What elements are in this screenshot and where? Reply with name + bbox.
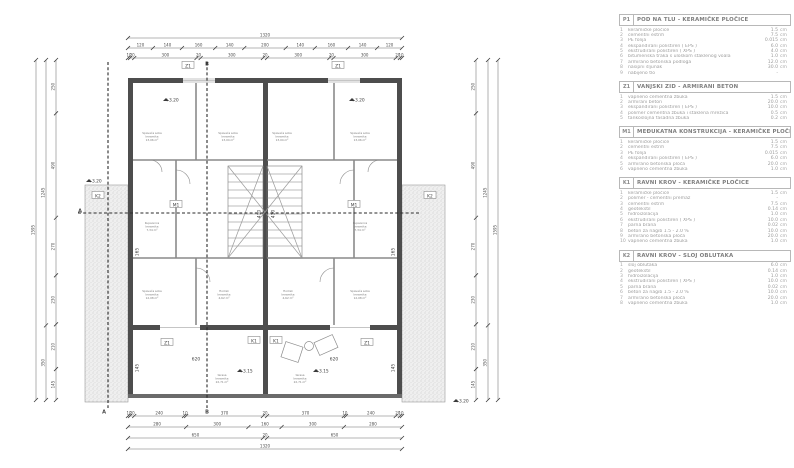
label-text: Z1: [335, 63, 341, 69]
legend-item-unit: cm: [778, 65, 791, 70]
room-label-line: 13,04 m²: [222, 138, 235, 142]
level-marker: +3.20: [86, 178, 102, 184]
room-label-line: 12,08 m²: [354, 296, 367, 300]
label-text: K1: [251, 338, 257, 344]
legend-item-unit: cm: [778, 167, 791, 172]
room-label-line: 22,71 m²: [216, 380, 229, 384]
tag-z1: Z1: [361, 338, 373, 346]
legend-item-num: 8: [620, 301, 628, 306]
legend-section-code: M1: [620, 127, 634, 137]
legend-item-name: vapneno cementna žbuka: [628, 301, 761, 306]
label-text: 410: [270, 210, 276, 219]
label-text: M1: [351, 202, 358, 208]
legend-section-title: RAVNI KROV - SLOJ OBLUTAKA: [634, 251, 790, 261]
annotation-label: 145: [134, 364, 140, 373]
room-label: terasakeramika22,71 m²: [216, 373, 229, 384]
window-icon: [328, 78, 360, 83]
room-label-line: 7,34 m²: [355, 228, 366, 232]
legend-item-num: 10: [620, 239, 628, 244]
window-icon: [183, 78, 215, 83]
label-text: 620: [330, 356, 339, 362]
dim-label: 490: [471, 161, 476, 169]
legend-item: 8vapneno cementna žbuka1.0cm: [620, 301, 791, 306]
level-marker: +3.20: [349, 97, 365, 103]
tag-k2: K2: [92, 191, 104, 199]
label-text: 145: [390, 364, 396, 373]
tag-z1: Z1: [161, 338, 173, 346]
annotation-label: 410: [256, 210, 262, 219]
annotation-label: 165: [134, 248, 140, 257]
legend-item-val: -: [761, 71, 778, 76]
dim-label: 280: [369, 422, 377, 427]
label-text: 620: [192, 356, 201, 362]
dim-label: 160: [261, 422, 269, 427]
label-text: 145: [134, 364, 140, 373]
dim-label: 140: [296, 43, 304, 48]
annotation-label: A: [78, 208, 82, 214]
room-label: Kupaonicakeramika7,34 m²: [145, 221, 160, 232]
legend-section-z1: Z1VANJSKI ZID - ARMIRANI BETON1vapneno c…: [619, 81, 791, 121]
dim-label: 1595: [493, 224, 498, 235]
dim-label: 300: [213, 422, 221, 427]
annotation-label: 145: [390, 364, 396, 373]
legend-item-name: vapneno cementna žbuka: [628, 239, 761, 244]
dim-label: 210: [471, 342, 476, 350]
dimension-chain: 120140160140200140160140120: [126, 43, 404, 50]
dim-label: 250: [51, 82, 56, 90]
dimension-chain: 280300160300280: [126, 422, 404, 429]
building-walls: [128, 78, 402, 398]
legend-section-title: POD NA TLU - KERAMIČKE PLOČICE: [634, 15, 790, 25]
dimension-chain: 1320: [126, 444, 404, 451]
dim-label: 240: [367, 411, 375, 416]
legend-section-title: RAVNI KROV - KERAMIČKE PLOČICE: [634, 178, 790, 188]
room-label: Spavaća sobakeramika12,08 m²: [142, 289, 162, 300]
tag-k2: K2: [424, 191, 436, 199]
dim-label: 350: [483, 358, 488, 366]
annotation-label: B: [205, 409, 209, 415]
dim-label: 200: [261, 43, 269, 48]
legend-item-name: vapneno cementna žbuka: [628, 167, 761, 172]
legend-item-list: 1keramičke pločice1.5cm2cementni estrih7…: [620, 140, 791, 172]
label-text: 410: [256, 210, 262, 219]
dim-label: 210: [51, 342, 56, 350]
label-text: +3.15: [315, 368, 329, 374]
tag-z1: Z1: [182, 61, 194, 69]
dimension-chain: 250490270230210145: [471, 58, 478, 402]
dim-label: 490: [51, 161, 56, 169]
dim-label: 160: [328, 43, 336, 48]
wall-terrace-bottom: [128, 394, 402, 398]
annotation-label: A: [102, 409, 106, 415]
dim-label: 20: [196, 53, 202, 58]
legend-item: 6vapneno cementna žbuka1.0cm: [620, 167, 791, 172]
legend-section-header: Z1VANJSKI ZID - ARMIRANI BETON: [619, 81, 791, 93]
legend-item-num: 6: [620, 167, 628, 172]
dimension-chain: 10203002030020300203002010: [126, 53, 404, 60]
dim-label: 145: [51, 380, 56, 388]
dimension-chain: 250490270230210145: [51, 58, 58, 402]
tag-m1: M1: [170, 200, 182, 208]
legend-item: 10vapneno cementna žbuka1.0cm: [620, 239, 791, 244]
dimension-chain: 1595: [493, 58, 500, 402]
legend-item-unit: cm: [778, 239, 791, 244]
dim-label: 300: [162, 53, 170, 58]
dimension-chain: 65020650: [126, 433, 404, 440]
dimension-chain: 10202401037020370102402010: [126, 411, 404, 418]
legend-section-code: P1: [620, 15, 634, 25]
room-label-line: 22,71 m²: [294, 380, 307, 384]
dim-label: 140: [164, 43, 172, 48]
dim-label: 10: [398, 411, 404, 416]
room-label: terasakeramika22,71 m²: [294, 373, 307, 384]
dim-label: 300: [309, 422, 317, 427]
dim-label: 1320: [260, 444, 271, 449]
dim-label: 650: [192, 433, 200, 438]
legend-item-name: tankoslojna fasadna žbuka: [628, 116, 761, 121]
dim-label: 270: [51, 242, 56, 250]
label-text: +3.20: [88, 178, 102, 184]
room-label-line: 13,04 m²: [276, 138, 289, 142]
dimension-chain: 1245350: [483, 58, 490, 402]
legend-item-list: 1sloj oblutaka6.0cm2geotekstil0.14cm3hid…: [620, 263, 791, 306]
label-text: K2: [95, 193, 101, 199]
legend-section-p1: P1POD NA TLU - KERAMIČKE PLOČICE1keramič…: [619, 14, 791, 76]
dim-label: 300: [228, 53, 236, 58]
dim-label: 140: [359, 43, 367, 48]
tag-k1: K1: [270, 336, 282, 344]
dim-label: 350: [41, 358, 46, 366]
dim-label: 20: [130, 411, 136, 416]
legend-item-unit: cm: [778, 191, 791, 196]
legend-section-code: K1: [620, 178, 634, 188]
room-label: Spavaća sobakeramika13,06 m²: [350, 131, 370, 142]
tag-m1: M1: [348, 200, 360, 208]
room-label: Hodnikkeramika4,62 m²: [218, 289, 231, 300]
dim-label: 370: [221, 411, 229, 416]
dim-label: 230: [471, 296, 476, 304]
dim-label: 650: [331, 433, 339, 438]
label-text: B: [205, 409, 209, 415]
dim-label: 270: [471, 242, 476, 250]
level-marker: +3.20: [163, 97, 179, 103]
annotation-label: 410: [270, 210, 276, 219]
dim-label: 240: [155, 411, 163, 416]
label-text: +3.15: [239, 368, 253, 374]
dim-label: 1320: [260, 33, 271, 38]
label-text: +3.20: [351, 97, 365, 103]
dim-label: 250: [471, 82, 476, 90]
room-label-line: 7,34 m²: [147, 228, 158, 232]
wall-right: [397, 78, 402, 398]
label-text: 165: [134, 248, 140, 257]
label-text: 165: [390, 248, 396, 257]
legend-item: 5tankoslojna fasadna žbuka0.2cm: [620, 116, 791, 121]
annotation-label: 620: [192, 356, 201, 362]
dim-label: 1595: [31, 224, 36, 235]
label-text: M1: [173, 202, 180, 208]
legend-item-unit: cm: [778, 301, 791, 306]
room-label: Spavaća sobakeramika12,08 m²: [350, 289, 370, 300]
legend-section-title: VANJSKI ZID - ARMIRANI BETON: [634, 82, 790, 92]
label-text: +3.20: [165, 97, 179, 103]
dim-label: 300: [361, 53, 369, 58]
level-marker: +3.20: [453, 398, 469, 404]
legend-item-num: 9: [620, 71, 628, 76]
legend-item-list: 1vapneno cementna žbuka1.5cm2armirani be…: [620, 95, 791, 122]
construction-legend: P1POD NA TLU - KERAMIČKE PLOČICE1keramič…: [619, 14, 791, 306]
wall-left: [128, 78, 133, 398]
annotation-label: B: [205, 61, 209, 67]
dim-label: 10: [342, 411, 348, 416]
dim-label: 140: [226, 43, 234, 48]
label-text: A: [102, 409, 106, 415]
dim-label: 10: [183, 411, 189, 416]
annotation-label: 165: [390, 248, 396, 257]
room-label: Spavaća sobakeramika13,04 m²: [218, 131, 238, 142]
legend-section-k2: K2RAVNI KROV - SLOJ OBLUTAKA1sloj obluta…: [619, 250, 791, 307]
label-text: Z1: [185, 63, 191, 69]
room-label: Spavaća sobakeramika13,04 m²: [272, 131, 292, 142]
legend-section-code: K2: [620, 251, 634, 261]
label-text: Z1: [364, 340, 370, 346]
legend-item-val: 0.2: [761, 116, 778, 121]
legend-section-header: K1RAVNI KROV - KERAMIČKE PLOČICE: [619, 177, 791, 189]
legend-item-val: 1.0: [761, 301, 778, 306]
label-text: B: [205, 61, 209, 67]
level-marker: +3.15: [313, 368, 329, 374]
dim-label: 120: [137, 43, 145, 48]
dim-label: 160: [195, 43, 203, 48]
room-label-line: 4,62 m²: [283, 296, 294, 300]
legend-section-header: M1MEĐUKATNA KONSTRUKCIJA - KERAMIČKE PLO…: [619, 126, 791, 138]
legend-section-code: Z1: [620, 82, 634, 92]
label-text: K2: [427, 193, 433, 199]
dim-label: 20: [262, 53, 268, 58]
dimension-chain: 1595: [31, 58, 38, 402]
dimension-chain: 1245350: [41, 58, 48, 402]
dim-label: 20: [262, 433, 268, 438]
legend-item-num: 5: [620, 116, 628, 121]
tag-z1: Z1: [332, 61, 344, 69]
legend-item: 9nabijeno tlo-: [620, 71, 791, 76]
room-label-line: 4,62 m²: [219, 296, 230, 300]
legend-item-list: 1keramičke pločice1.5cm2polimer - cement…: [620, 191, 791, 245]
floor-plan-drawing: 1320120140160140200140160140120102030020…: [0, 0, 615, 468]
room-label-line: 13,06 m²: [146, 138, 159, 142]
dim-label: 20: [130, 53, 136, 58]
room-label: Spavaća sobakeramika13,06 m²: [142, 131, 162, 142]
room-label: Hodnikkeramika4,62 m²: [282, 289, 295, 300]
dimension-chain: 1320: [126, 33, 404, 40]
legend-section-k1: K1RAVNI KROV - KERAMIČKE PLOČICE1keramič…: [619, 177, 791, 244]
dim-label: 1245: [41, 187, 46, 198]
legend-item-val: 1.0: [761, 239, 778, 244]
label-text: +3.20: [455, 398, 469, 404]
tag-k1: K1: [248, 336, 260, 344]
room-label: Kupaonicakeramika7,34 m²: [353, 221, 368, 232]
legend-section-title: MEĐUKATNA KONSTRUKCIJA - KERAMIČKE PLOČI…: [634, 127, 790, 137]
legend-section-m1: M1MEĐUKATNA KONSTRUKCIJA - KERAMIČKE PLO…: [619, 126, 791, 172]
legend-item-list: 1keramičke pločice1.5cm2cementni estrih7…: [620, 28, 791, 77]
dim-label: 20: [262, 411, 268, 416]
room-label-line: 13,06 m²: [354, 138, 367, 142]
room-label-line: 12,08 m²: [146, 296, 159, 300]
legend-section-header: P1POD NA TLU - KERAMIČKE PLOČICE: [619, 14, 791, 26]
label-text: K1: [273, 338, 279, 344]
legend-section-header: K2RAVNI KROV - SLOJ OBLUTAKA: [619, 250, 791, 262]
label-text: Z1: [164, 340, 170, 346]
legend-item-val: 1.0: [761, 167, 778, 172]
annotation-label: 620: [330, 356, 339, 362]
level-marker: +3.15: [237, 368, 253, 374]
dim-label: 145: [471, 380, 476, 388]
dim-label: 230: [51, 296, 56, 304]
dim-label: 10: [398, 53, 404, 58]
legend-item-name: nabijeno tlo: [628, 71, 761, 76]
dim-label: 370: [302, 411, 310, 416]
dim-label: 280: [153, 422, 161, 427]
gravel-roof-left: [85, 185, 128, 402]
dim-label: 1245: [483, 187, 488, 198]
floor-plan-sheet: 1320120140160140200140160140120102030020…: [0, 0, 794, 468]
dim-label: 20: [329, 53, 335, 58]
legend-item-unit: cm: [778, 116, 791, 121]
dim-label: 120: [386, 43, 394, 48]
dim-label: 300: [294, 53, 302, 58]
gravel-roof-right: [402, 185, 445, 402]
label-text: A: [78, 208, 82, 214]
